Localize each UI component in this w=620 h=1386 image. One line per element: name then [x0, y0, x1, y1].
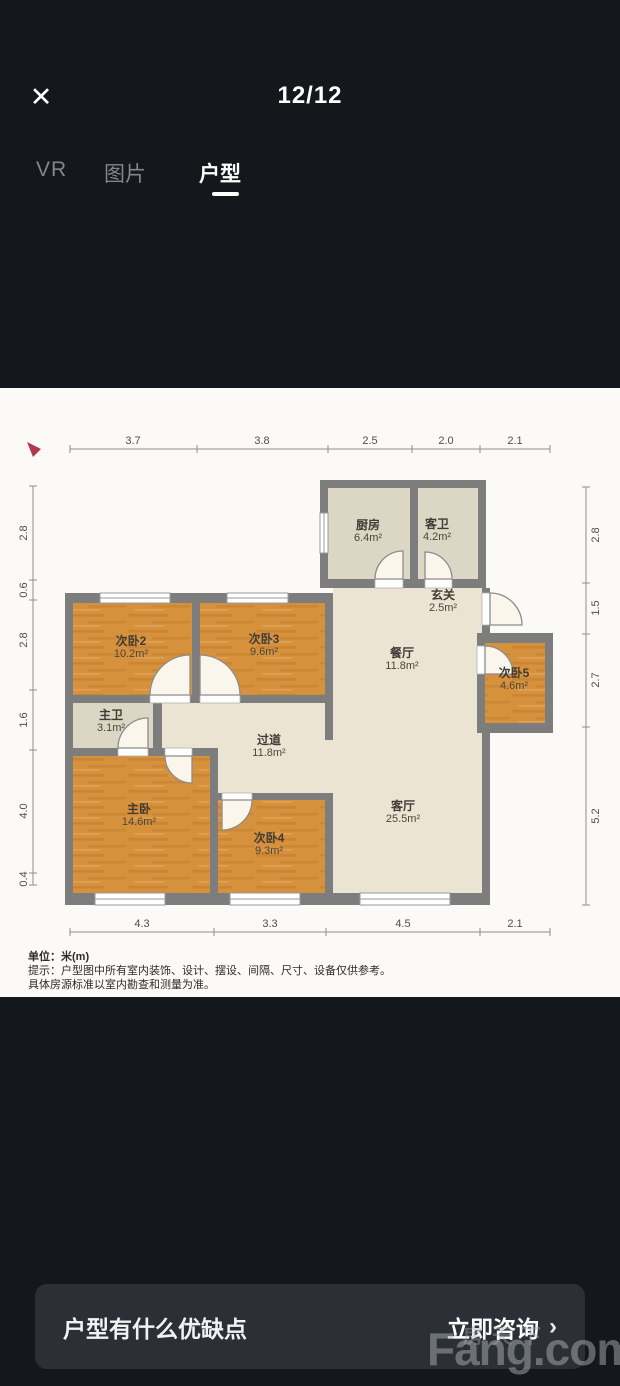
dim-label: 2.1 [507, 435, 522, 447]
room-area: 4.2m² [423, 532, 451, 545]
photo-counter: 12/12 [0, 82, 620, 110]
dim-label: 2.5 [362, 435, 377, 447]
tab-images[interactable]: 图片 [104, 158, 146, 188]
photo-viewer-screen: ✕ 12/12 VR 图片 户型 [0, 0, 620, 1386]
room-label: 餐厅 11.8m² [385, 646, 418, 674]
room-area: 9.3m² [254, 846, 285, 859]
dim-label: 2.7 [590, 672, 602, 687]
dim-label: 1.5 [590, 600, 602, 615]
watermark-fang-com: Fang.com [427, 1322, 620, 1376]
room-area: 9.6m² [249, 647, 280, 660]
room-label: 厨房 6.4m² [354, 518, 382, 546]
dim-label: 3.3 [262, 918, 277, 930]
dim-label: 3.8 [254, 435, 269, 447]
room-label: 玄关 2.5m² [429, 588, 457, 616]
room-label: 客卫 4.2m² [423, 517, 451, 545]
room-area: 6.4m² [354, 533, 382, 546]
room-label: 客厅 25.5m² [386, 799, 420, 827]
active-tab-underline [212, 192, 239, 196]
room-area: 11.8m² [385, 661, 418, 674]
tab-vr[interactable]: VR [36, 158, 67, 182]
room-name: 厨房 [354, 518, 382, 532]
dim-label: 0.6 [18, 582, 30, 597]
room-area: 2.5m² [429, 603, 457, 616]
dim-label: 3.7 [125, 435, 140, 447]
room-label: 次卧3 9.6m² [249, 632, 280, 660]
disclaimer-line2: 具体房源标准以室内勘查和测量为准。 [28, 976, 215, 992]
room-name: 次卧4 [254, 831, 285, 845]
room-name: 玄关 [429, 588, 457, 602]
dim-label: 2.8 [590, 527, 602, 542]
room-area: 14.6m² [122, 817, 156, 830]
room-area: 3.1m² [97, 723, 125, 736]
room-name: 次卧3 [249, 632, 280, 646]
room-label: 过道 11.8m² [252, 733, 285, 761]
room-name: 过道 [252, 733, 285, 747]
room-name: 餐厅 [385, 646, 418, 660]
dim-label: 2.8 [18, 632, 30, 647]
dim-label: 5.2 [590, 808, 602, 823]
room-name: 客厅 [386, 799, 420, 813]
room-name: 主卫 [97, 708, 125, 722]
room-area: 25.5m² [386, 814, 420, 827]
dim-label: 0.4 [18, 871, 30, 886]
floorplan-image[interactable]: 厨房 6.4m² 客卫 4.2m² 玄关 2.5m² 餐厅 11.8m² 次卧2… [0, 388, 620, 997]
tab-floorplan[interactable]: 户型 [199, 158, 241, 188]
room-name: 次卧5 [499, 666, 530, 680]
room-area: 11.8m² [252, 748, 285, 761]
room-label: 次卧2 10.2m² [114, 634, 148, 662]
room-label: 主卧 14.6m² [122, 802, 156, 830]
room-name: 次卧2 [114, 634, 148, 648]
room-label: 主卫 3.1m² [97, 708, 125, 736]
dim-label: 2.1 [507, 918, 522, 930]
room-label: 次卧4 9.3m² [254, 831, 285, 859]
room-label: 次卧5 4.6m² [499, 666, 530, 694]
room-name: 主卧 [122, 802, 156, 816]
compass-icon [27, 442, 41, 457]
dim-label: 2.0 [438, 435, 453, 447]
room-area: 4.6m² [499, 681, 530, 694]
dim-label: 4.5 [395, 918, 410, 930]
room-name: 客卫 [423, 517, 451, 531]
dim-label: 2.8 [18, 525, 30, 540]
dim-label: 1.6 [18, 712, 30, 727]
consult-question: 户型有什么优缺点 [63, 1310, 247, 1344]
room-area: 10.2m² [114, 649, 148, 662]
dim-label: 4.0 [18, 803, 30, 818]
dim-label: 4.3 [134, 918, 149, 930]
room-fills [73, 488, 545, 893]
